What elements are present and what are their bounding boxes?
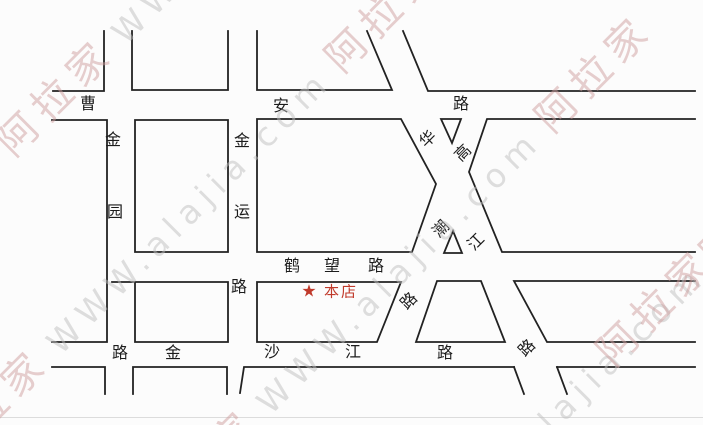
road-label-caoan-1: 曹	[80, 96, 96, 112]
scan-edge-line	[0, 417, 703, 418]
road-label-hewang-1: 鹤	[284, 258, 300, 274]
block-outline-top-mid2	[257, 31, 392, 90]
scanned-map-page: 曹 安 路 金 园 路 金 运 路 鹤 望 路 金 沙 江 路 华 江 路 高 …	[0, 0, 703, 425]
block-outline-lower-mid	[135, 282, 228, 342]
block-outline-mid	[135, 120, 228, 252]
road-label-jinshajiang-1: 金	[165, 345, 181, 361]
road-label-hewang-2: 望	[324, 258, 340, 274]
shop-marker-label: 本店	[324, 285, 358, 300]
block-outline-top-left	[53, 31, 104, 91]
road-label-caoan-3: 路	[453, 96, 469, 112]
junction-wedge-north	[441, 119, 461, 143]
road-edge-huajiang-south-east	[557, 367, 567, 394]
road-label-jinyuan-3: 路	[112, 345, 128, 361]
block-outline-far-east	[469, 119, 695, 252]
block-outline-bottom-east	[240, 367, 514, 393]
road-label-caoan-2: 安	[273, 98, 289, 114]
road-label-jinyun-1: 金	[234, 133, 250, 149]
block-outline-bottom-mid	[133, 367, 227, 394]
road-label-jinyuan-2: 园	[107, 204, 123, 220]
road-label-jinyun-3: 路	[231, 279, 247, 295]
street-map-drawing	[0, 0, 703, 425]
block-outline-lower-east	[514, 281, 695, 342]
shop-star-icon: ★	[301, 284, 316, 301]
block-outline-trapezoid	[416, 281, 505, 342]
road-label-jinyun-2: 运	[234, 204, 250, 220]
road-edge-huajiang-south-west	[514, 367, 524, 394]
block-outline-west	[52, 120, 107, 342]
road-label-jinshajiang-3: 江	[345, 344, 361, 360]
block-outline-top-mid	[132, 31, 228, 90]
block-outline-top-right	[403, 31, 695, 91]
road-label-jinyuan-1: 金	[105, 132, 121, 148]
road-label-hewang-3: 路	[368, 258, 384, 274]
block-outline-bottom-left	[52, 367, 105, 394]
block-outline-mid-east	[257, 119, 436, 252]
road-label-jinshajiang-4: 路	[437, 345, 453, 361]
road-label-jinshajiang-2: 沙	[264, 344, 280, 360]
